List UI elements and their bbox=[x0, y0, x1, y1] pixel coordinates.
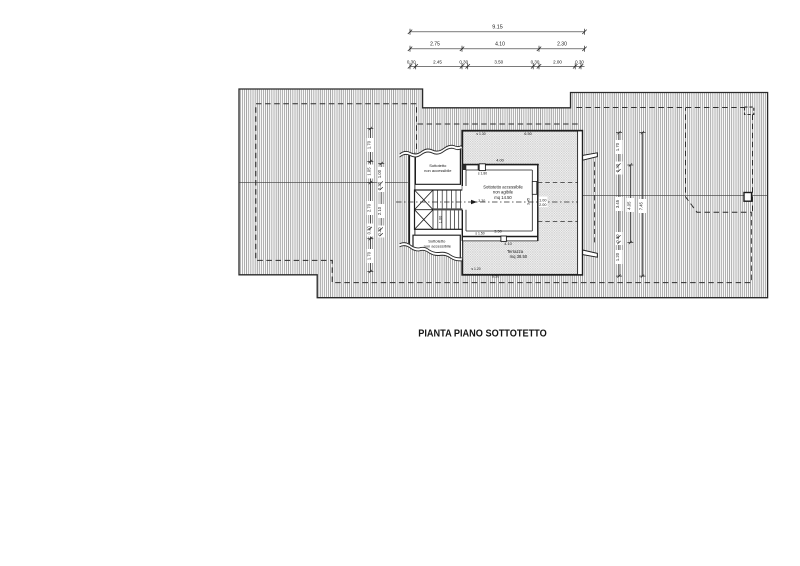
svg-text:4.10: 4.10 bbox=[495, 42, 505, 48]
svg-text:1.70: 1.70 bbox=[615, 142, 620, 151]
svg-text:6.50: 6.50 bbox=[524, 131, 532, 136]
svg-text:0.30: 0.30 bbox=[531, 59, 540, 64]
svg-text:1.70: 1.70 bbox=[366, 140, 371, 149]
svg-text:mq 14.50: mq 14.50 bbox=[494, 195, 512, 200]
svg-text:1.00: 1.00 bbox=[377, 169, 382, 178]
svg-text:3.45: 3.45 bbox=[527, 198, 531, 205]
svg-text:1.20: 1.20 bbox=[615, 252, 620, 261]
svg-text:2.75: 2.75 bbox=[430, 42, 440, 48]
svg-text:s 1.50: s 1.50 bbox=[475, 231, 484, 235]
svg-text:2.00: 2.00 bbox=[539, 203, 546, 207]
svg-text:6.50: 6.50 bbox=[492, 274, 500, 279]
svg-text:1.70: 1.70 bbox=[366, 251, 371, 260]
svg-text:1.00: 1.00 bbox=[439, 216, 443, 223]
svg-text:non accessibile: non accessibile bbox=[424, 243, 452, 248]
svg-text:PIANTA PIANO SOTTOTETTO: PIANTA PIANO SOTTOTETTO bbox=[418, 329, 547, 340]
svg-text:2.00: 2.00 bbox=[553, 59, 562, 64]
svg-text:2.30: 2.30 bbox=[557, 42, 567, 48]
svg-text:1.00: 1.00 bbox=[539, 198, 546, 202]
svg-text:4.10: 4.10 bbox=[504, 241, 512, 246]
svg-text:0.30: 0.30 bbox=[575, 59, 584, 64]
svg-text:2.70: 2.70 bbox=[366, 203, 371, 212]
svg-text:3.30: 3.30 bbox=[478, 199, 485, 203]
svg-text:3.50: 3.50 bbox=[494, 59, 503, 64]
svg-text:non accessibile: non accessibile bbox=[424, 168, 452, 173]
svg-text:s 1.20: s 1.20 bbox=[471, 267, 480, 271]
svg-text:0.30: 0.30 bbox=[407, 59, 416, 64]
svg-text:3.45: 3.45 bbox=[615, 199, 620, 208]
svg-text:3.50: 3.50 bbox=[494, 229, 502, 234]
svg-text:1.05: 1.05 bbox=[366, 167, 371, 176]
svg-text:2.45: 2.45 bbox=[433, 59, 442, 64]
svg-text:non agibile: non agibile bbox=[493, 189, 514, 194]
svg-text:s 1.30: s 1.30 bbox=[476, 132, 485, 136]
svg-text:4.00: 4.00 bbox=[496, 158, 504, 163]
svg-text:2.10: 2.10 bbox=[377, 206, 382, 215]
svg-text:s 1.80: s 1.80 bbox=[478, 171, 487, 175]
svg-text:7.45: 7.45 bbox=[638, 201, 643, 210]
svg-text:0.30: 0.30 bbox=[459, 59, 468, 64]
svg-text:mq 38.50: mq 38.50 bbox=[510, 254, 528, 259]
svg-text:9.15: 9.15 bbox=[492, 25, 503, 31]
svg-text:4.05: 4.05 bbox=[626, 201, 631, 210]
